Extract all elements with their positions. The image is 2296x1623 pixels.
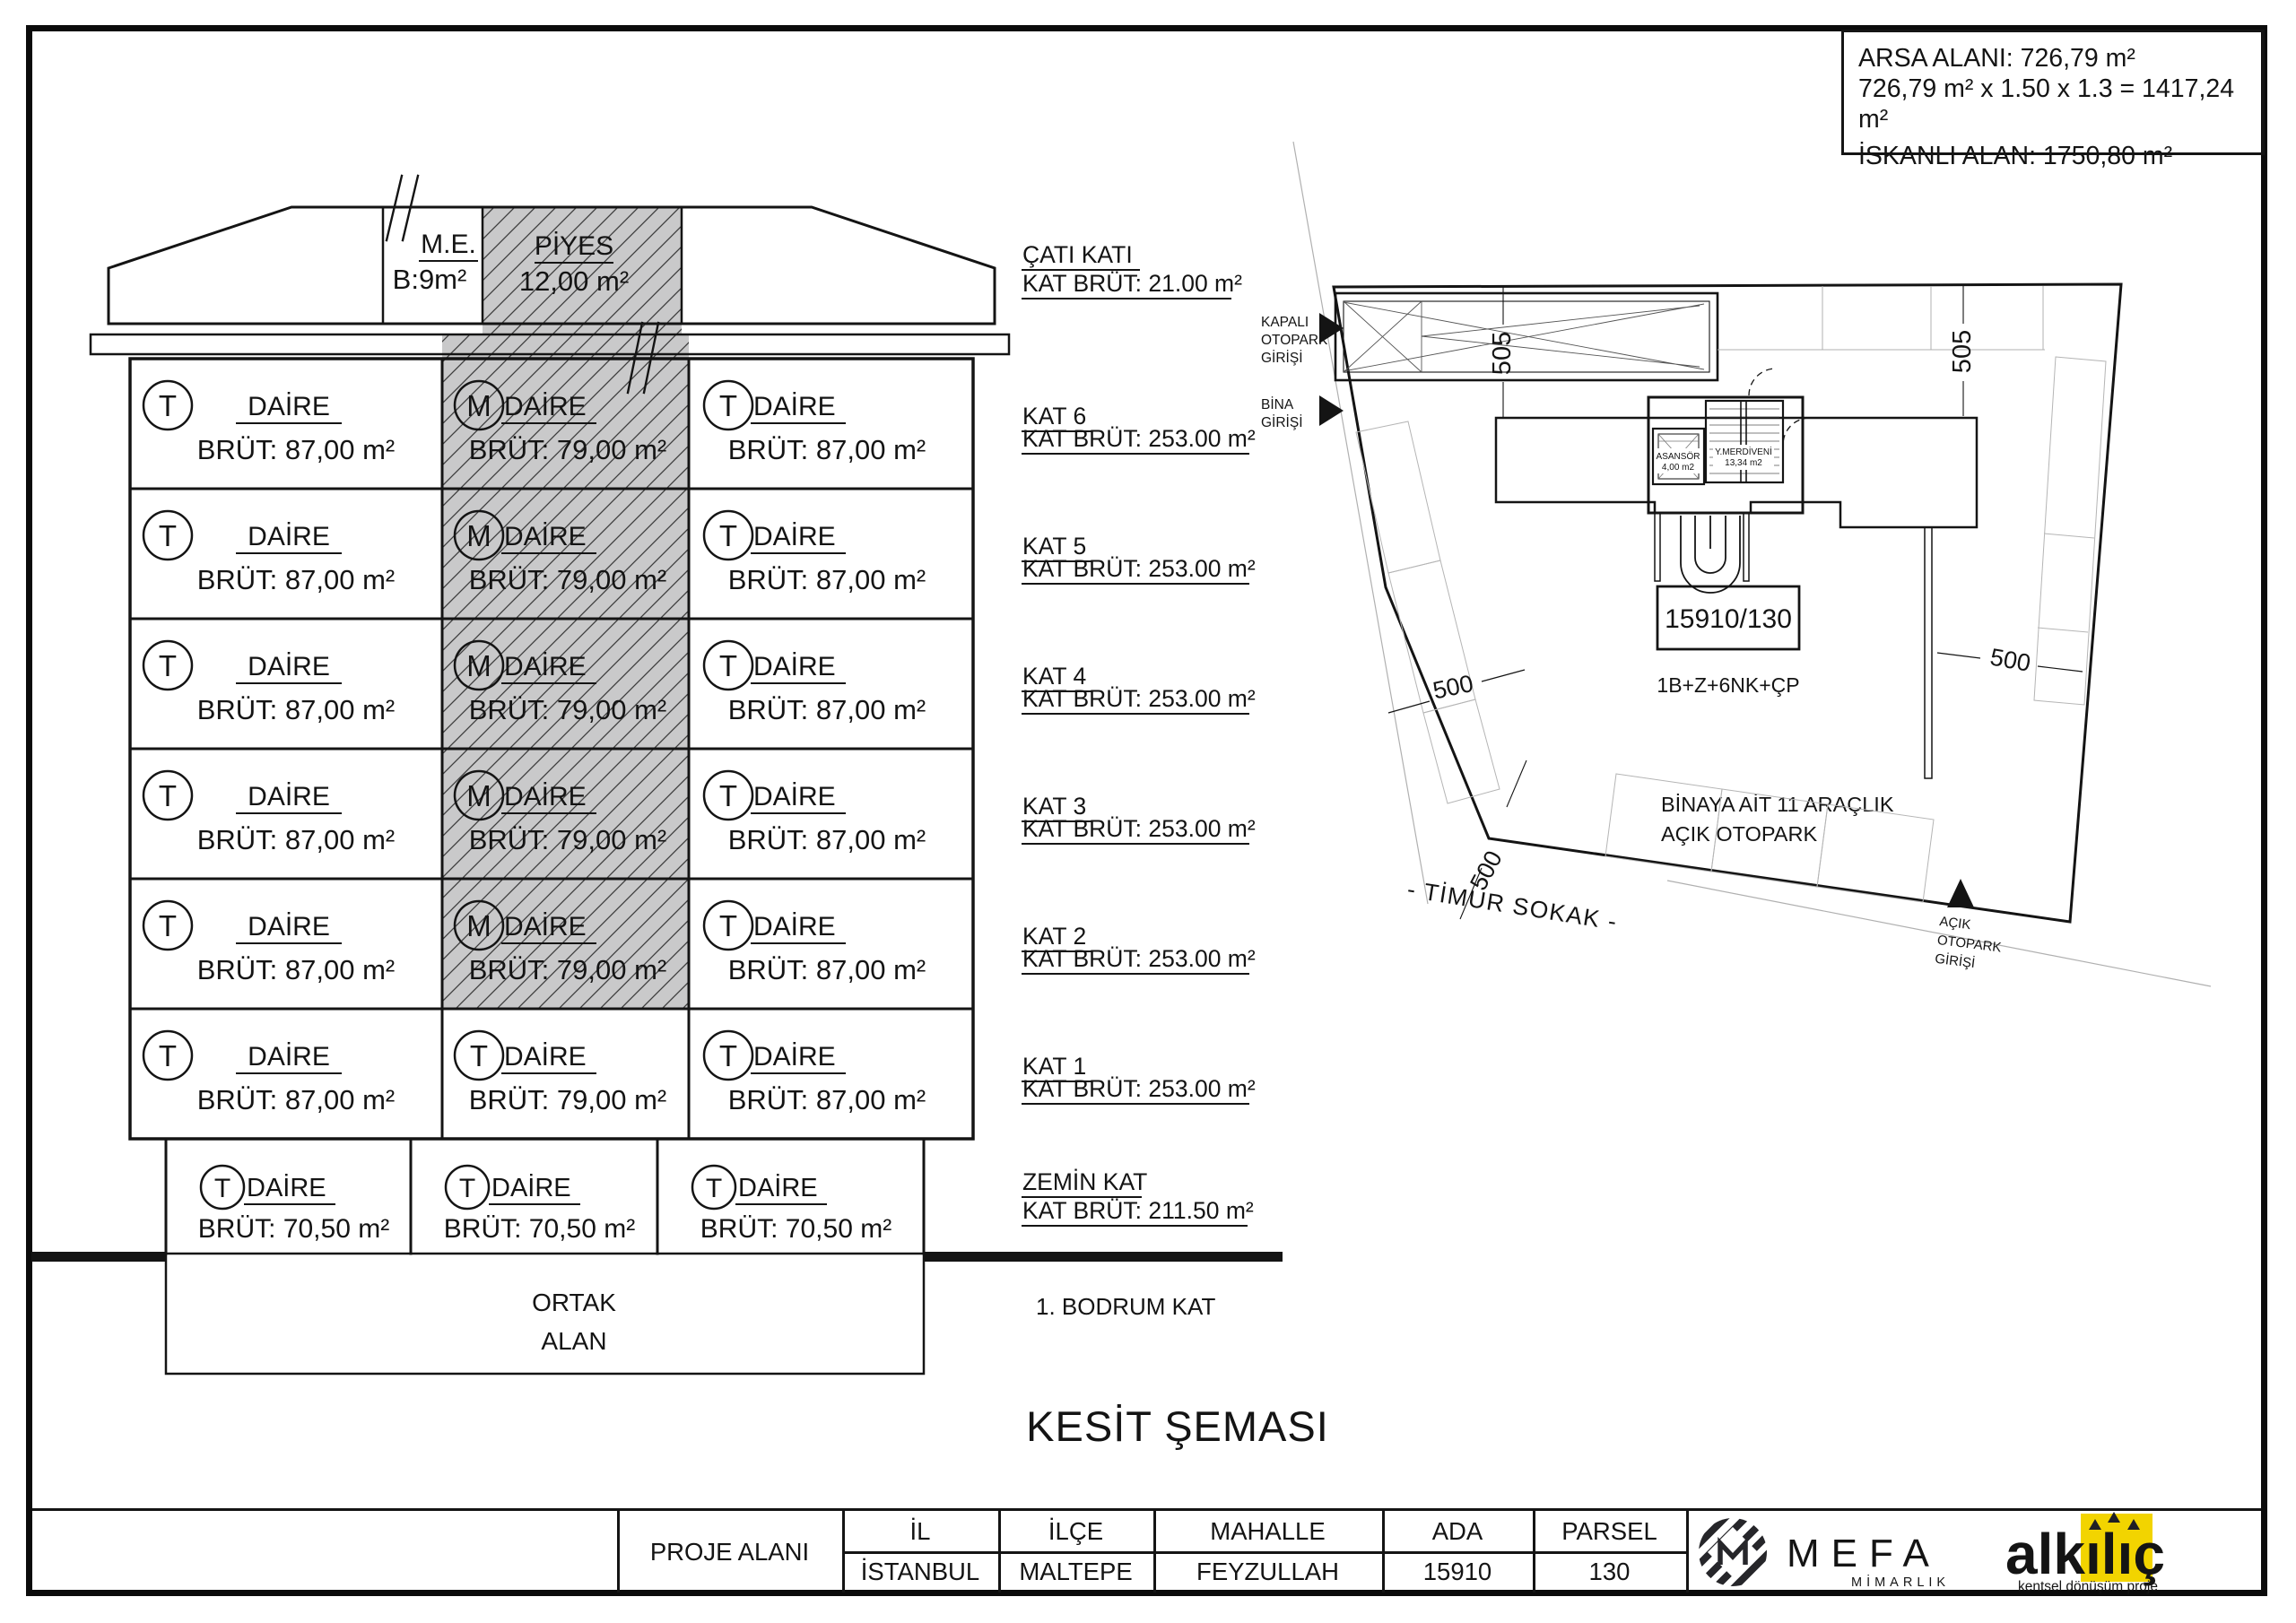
title-col-header: ADA bbox=[1382, 1511, 1533, 1551]
title-col-header: PARSEL bbox=[1533, 1511, 1686, 1551]
title-col-value: FEYZULLAH bbox=[1153, 1551, 1382, 1593]
drawing-sheet: ARSA ALANI: 726,79 m² 726,79 m² x 1.50 x… bbox=[0, 0, 2296, 1623]
title-col-value: 15910 bbox=[1382, 1551, 1533, 1593]
area-info-box: ARSA ALANI: 726,79 m² 726,79 m² x 1.50 x… bbox=[1841, 30, 2265, 155]
title-col-value: İSTANBUL bbox=[842, 1551, 998, 1593]
title-block-row-divider bbox=[842, 1551, 1686, 1554]
title-block-divider bbox=[1686, 1511, 1689, 1593]
project-area-label: PROJE ALANI bbox=[617, 1511, 842, 1593]
sheet-border bbox=[26, 25, 2267, 1596]
title-col-header: İL bbox=[842, 1511, 998, 1551]
title-block-divider bbox=[617, 1511, 620, 1593]
title-col-value: 130 bbox=[1533, 1551, 1686, 1593]
title-col-value: MALTEPE bbox=[998, 1551, 1153, 1593]
arsa-calc-line: 726,79 m² x 1.50 x 1.3 = 1417,24 m² bbox=[1858, 74, 2262, 135]
title-block: PROJE ALANI İLİSTANBULİLÇEMALTEPEMAHALLE… bbox=[32, 1508, 2261, 1590]
title-col-header: MAHALLE bbox=[1153, 1511, 1382, 1551]
title-col-header: İLÇE bbox=[998, 1511, 1153, 1551]
arsa-alani-line: ARSA ALANI: 726,79 m² bbox=[1858, 43, 2262, 74]
iskanli-alan-line: İSKANLI ALAN: 1750,80 m² bbox=[1858, 141, 2262, 171]
